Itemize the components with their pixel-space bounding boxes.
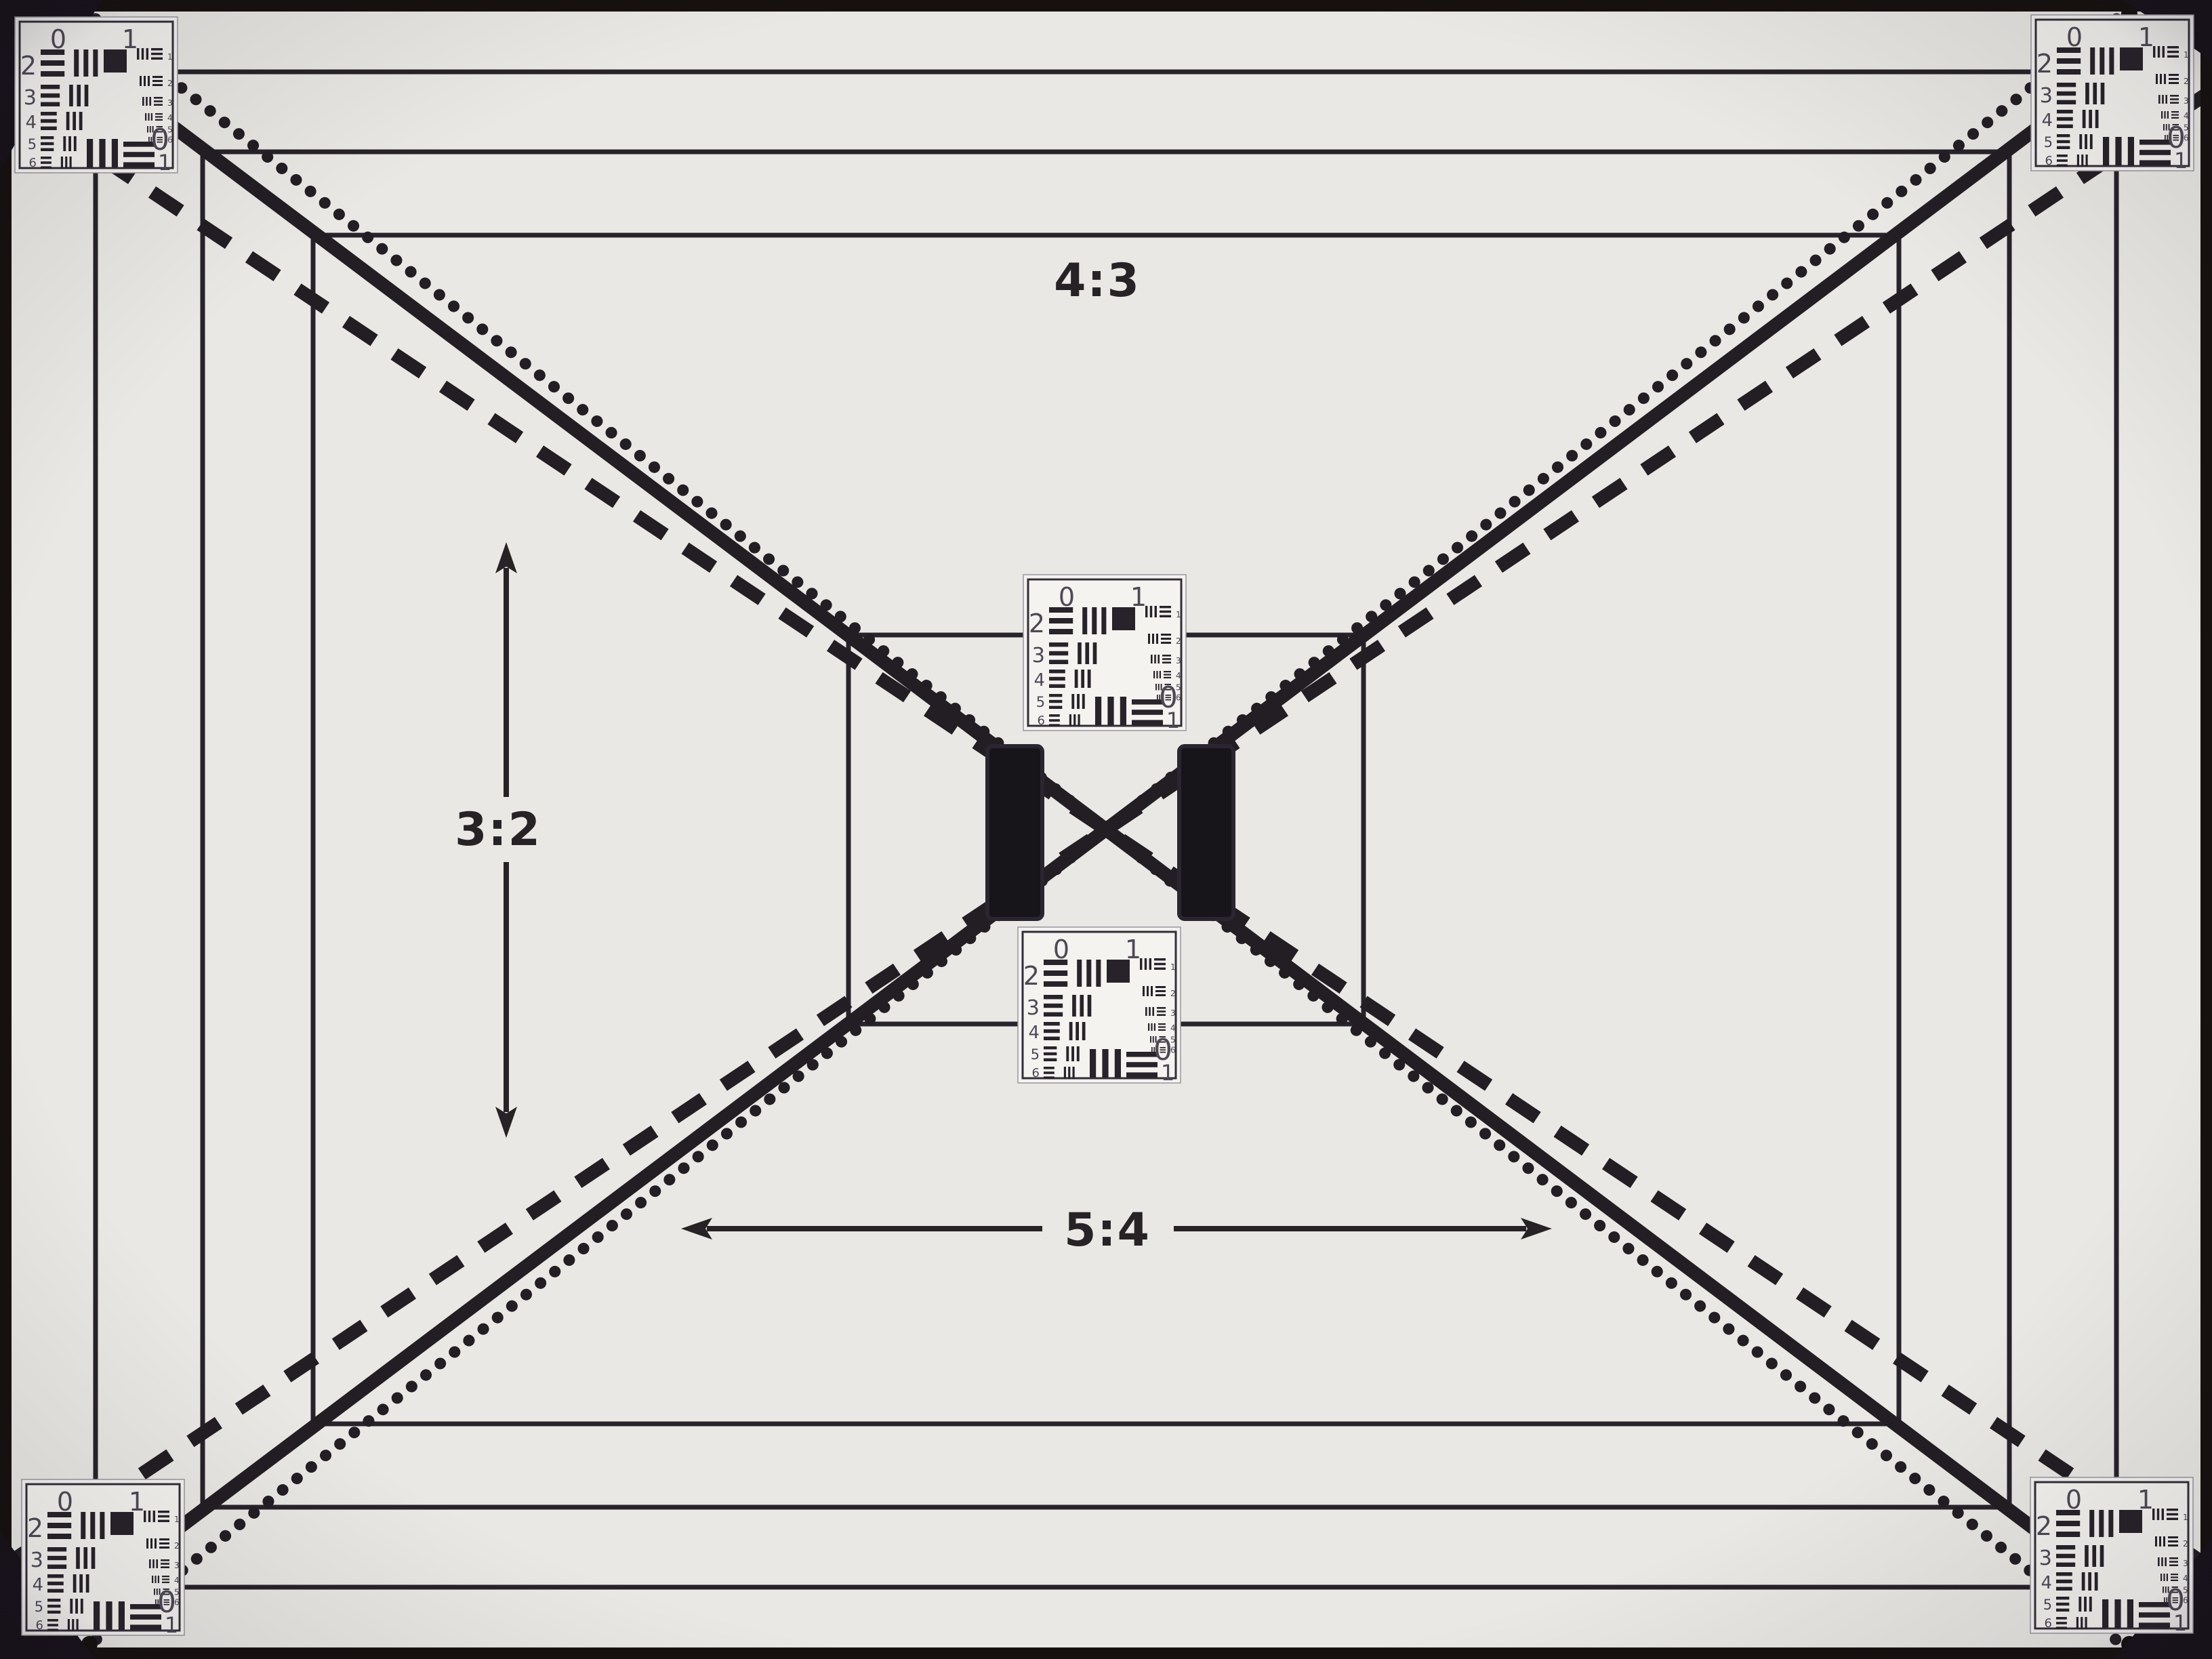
- bar: [1085, 642, 1089, 664]
- bar-group-vertical: [2079, 134, 2092, 149]
- bar: [1049, 651, 1068, 655]
- bar-group-vertical: [1148, 1023, 1155, 1031]
- row-number: 2: [27, 1513, 43, 1543]
- bar-group-vertical: [61, 157, 72, 169]
- bar: [90, 1512, 95, 1539]
- bar: [1044, 1037, 1060, 1040]
- bar: [2127, 1599, 2133, 1628]
- bar: [1044, 1067, 1054, 1069]
- bar: [148, 76, 150, 86]
- bar: [91, 1547, 96, 1569]
- bar-group-vertical: [1145, 606, 1157, 617]
- card-scale-label-1: 1: [1161, 1060, 1174, 1086]
- bar: [1151, 655, 1153, 663]
- bar: [1071, 1046, 1074, 1061]
- bar: [1082, 1022, 1086, 1040]
- bar: [47, 1624, 58, 1626]
- bar: [106, 1601, 112, 1630]
- bar: [1161, 642, 1171, 644]
- bar: [1073, 714, 1076, 726]
- bar: [1076, 1022, 1079, 1040]
- bar: [1160, 606, 1171, 608]
- row-number: 5: [35, 1599, 43, 1615]
- bar: [2057, 91, 2076, 96]
- bar: [1044, 1029, 1060, 1033]
- bar: [47, 1547, 66, 1551]
- bar: [155, 1576, 156, 1583]
- bar: [74, 136, 77, 151]
- bar: [1156, 634, 1158, 644]
- bar: [1064, 1067, 1066, 1079]
- bar: [155, 116, 163, 117]
- bar: [154, 100, 163, 102]
- bar: [1068, 1067, 1070, 1079]
- bar: [1150, 1036, 1151, 1043]
- bar-group-horizontal: [1160, 606, 1171, 617]
- bar-group-horizontal: [2056, 1597, 2069, 1612]
- bar-group-horizontal: [155, 113, 163, 121]
- bar-group-vertical: [1075, 670, 1091, 688]
- bar-group-horizontal: [1162, 655, 1171, 663]
- test-chart-photo: 0123456123456010123456123456010123456123…: [0, 0, 2212, 1659]
- bar-group-horizontal: [152, 76, 163, 86]
- bar: [47, 1599, 60, 1601]
- bar-group-horizontal: [1044, 1046, 1057, 1061]
- row-number: 5: [1031, 1046, 1040, 1063]
- bar: [2167, 111, 2169, 119]
- bar: [2171, 1576, 2178, 1578]
- bar-group-vertical: [1095, 697, 1126, 725]
- bar: [1161, 634, 1171, 636]
- bar-group-horizontal: [2171, 1574, 2178, 1581]
- bar: [93, 49, 98, 77]
- bar: [2056, 1510, 2080, 1515]
- bar: [2161, 1557, 2163, 1566]
- bar-group-vertical: [2089, 1510, 2113, 1537]
- bar: [159, 1538, 169, 1540]
- bar: [161, 1566, 169, 1568]
- bar: [68, 1619, 70, 1631]
- bar: [2155, 1536, 2157, 1547]
- row-number: 3: [1027, 996, 1040, 1020]
- bar: [1078, 642, 1082, 664]
- bar: [2081, 155, 2083, 167]
- bar: [1078, 714, 1080, 726]
- row-number: 3: [2039, 1547, 2052, 1570]
- bar: [2089, 110, 2092, 128]
- bar: [2158, 95, 2160, 104]
- bar: [47, 1582, 64, 1585]
- bar-group-vertical: [1090, 1049, 1121, 1078]
- bar: [155, 1538, 157, 1549]
- bar: [146, 97, 148, 106]
- bar: [1044, 1004, 1063, 1008]
- bar: [47, 1611, 60, 1614]
- usaf-target-card-top-left: 012345612345601: [15, 17, 178, 176]
- big-black-square: [2120, 47, 2143, 70]
- bar: [2158, 1557, 2160, 1566]
- bar: [2057, 110, 2073, 113]
- element-number: 2: [2183, 1539, 2188, 1549]
- bar: [2171, 114, 2179, 115]
- bar: [1155, 684, 1157, 691]
- bar: [1145, 958, 1147, 970]
- bar: [1049, 660, 1068, 664]
- element-number: 1: [174, 1515, 180, 1524]
- bar: [41, 119, 57, 123]
- bar: [1162, 661, 1171, 663]
- bar-group-horizontal: [41, 49, 64, 77]
- bar: [47, 1523, 71, 1528]
- bar: [47, 1629, 58, 1631]
- bar: [2085, 134, 2087, 149]
- bar: [2139, 1622, 2170, 1628]
- bar: [1164, 674, 1171, 675]
- bar: [2088, 1572, 2091, 1591]
- bar: [1095, 697, 1101, 725]
- bar: [1157, 1014, 1166, 1016]
- bar: [2090, 47, 2095, 75]
- bar: [2056, 1580, 2072, 1583]
- bar-group-vertical: [2158, 1557, 2167, 1566]
- bar: [1044, 1071, 1054, 1074]
- bar: [1049, 684, 1065, 688]
- bar-group-horizontal: [2057, 83, 2076, 104]
- bar: [2169, 82, 2179, 84]
- bar: [2170, 95, 2179, 97]
- bar: [1162, 655, 1171, 657]
- bar-group-horizontal: [2057, 110, 2073, 128]
- bar-group-vertical: [2152, 1509, 2164, 1520]
- bar: [2085, 1545, 2089, 1567]
- bar: [151, 58, 163, 60]
- bar: [1102, 1049, 1108, 1078]
- bar: [47, 1556, 66, 1560]
- bar: [154, 104, 163, 106]
- bar-group-vertical: [2153, 46, 2165, 58]
- bar: [2077, 155, 2079, 167]
- bar: [75, 1599, 78, 1614]
- bar-group-vertical: [142, 97, 151, 106]
- bar-group-vertical: [1148, 634, 1158, 644]
- bar: [1090, 1049, 1096, 1078]
- bar: [148, 113, 149, 121]
- card-scale-label-1: 1: [2174, 148, 2188, 173]
- bar: [83, 1547, 87, 1569]
- big-black-square: [110, 1512, 134, 1535]
- bar: [2168, 1536, 2178, 1538]
- bar: [2057, 117, 2073, 121]
- bar: [161, 1559, 169, 1561]
- bar: [1093, 642, 1097, 664]
- bar: [2164, 111, 2165, 119]
- bar: [2095, 1572, 2098, 1591]
- bar: [2103, 137, 2109, 165]
- bar: [158, 1515, 169, 1517]
- bar: [73, 1574, 77, 1593]
- aspect-label-4-3: 4:3: [1054, 254, 1141, 308]
- bar-group-vertical: [1072, 995, 1091, 1017]
- bar: [2056, 1626, 2067, 1629]
- bar-group-vertical: [1078, 642, 1097, 664]
- bar: [2171, 1574, 2178, 1575]
- bar-group-horizontal: [2056, 1617, 2067, 1629]
- element-number: 2: [167, 79, 173, 88]
- bar-group-vertical: [2078, 1597, 2091, 1612]
- bar: [77, 1619, 79, 1631]
- bar: [72, 1619, 74, 1631]
- bar-group-vertical: [68, 1619, 79, 1631]
- bar-group-horizontal: [1155, 986, 1166, 996]
- bar: [158, 1520, 169, 1522]
- bar: [99, 139, 105, 167]
- usaf-target-card-top-right: 012345612345601: [2031, 15, 2194, 173]
- bar: [119, 1601, 125, 1630]
- bar: [2056, 1587, 2072, 1591]
- row-number: 4: [1034, 670, 1045, 691]
- row-number: 2: [2036, 49, 2053, 79]
- bar: [1071, 694, 1074, 709]
- bar: [146, 48, 148, 60]
- bar: [2099, 1510, 2104, 1537]
- bar: [142, 97, 144, 106]
- bar: [1082, 607, 1087, 634]
- bar: [2157, 1509, 2159, 1520]
- bar-group-horizontal: [1044, 995, 1063, 1017]
- element-number: 3: [174, 1561, 180, 1570]
- bar-group-vertical: [1069, 1022, 1086, 1040]
- bar: [1081, 670, 1084, 688]
- bar: [41, 148, 54, 151]
- bar: [1158, 655, 1160, 663]
- bar-group-horizontal: [41, 136, 54, 151]
- bar: [2167, 1518, 2178, 1520]
- bar: [159, 1542, 169, 1544]
- bar-group-vertical: [1082, 607, 1106, 634]
- bar-group-horizontal: [158, 1511, 169, 1522]
- bar-group-vertical: [70, 1599, 83, 1614]
- row-number: 2: [1029, 609, 1045, 638]
- bar: [2089, 1510, 2094, 1537]
- bar: [100, 1512, 104, 1539]
- bar: [1143, 986, 1145, 996]
- bar-group-vertical: [152, 1576, 159, 1583]
- bar: [123, 162, 155, 167]
- bar: [1160, 671, 1161, 678]
- bar-group-horizontal: [1049, 714, 1060, 726]
- bar-group-vertical: [1066, 1046, 1079, 1061]
- bar: [2163, 124, 2165, 131]
- bar: [2167, 56, 2179, 58]
- bar: [79, 112, 83, 130]
- bar: [41, 49, 64, 55]
- row-number: 3: [30, 1549, 43, 1572]
- bar: [47, 1589, 64, 1593]
- bar: [149, 1559, 151, 1568]
- bar: [2171, 111, 2179, 112]
- bar: [47, 1565, 66, 1569]
- bar: [2057, 164, 2068, 167]
- bar: [86, 1574, 89, 1593]
- bar: [151, 48, 163, 50]
- bar-group-vertical: [74, 49, 98, 77]
- bar-group-horizontal: [1044, 960, 1067, 987]
- bar: [2162, 1509, 2164, 1520]
- bar: [1044, 1059, 1057, 1061]
- bar-group-vertical: [1151, 655, 1160, 663]
- bar: [1147, 986, 1149, 996]
- bar: [1140, 958, 1142, 970]
- bar: [1088, 995, 1092, 1017]
- bar: [1154, 655, 1156, 663]
- bar: [1120, 697, 1126, 725]
- bar: [2089, 1597, 2092, 1612]
- bar-group-horizontal: [161, 1559, 169, 1568]
- element-number: 2: [2184, 77, 2189, 86]
- bar-group-vertical: [1145, 1007, 1154, 1016]
- bar: [1096, 960, 1101, 987]
- bar: [41, 166, 52, 169]
- bar: [2169, 1557, 2178, 1559]
- bar: [1049, 618, 1073, 623]
- bar: [2092, 1545, 2096, 1567]
- bar: [1154, 1023, 1155, 1031]
- bar: [2171, 1580, 2178, 1581]
- usaf-target-card-center-bottom: 012345612345601: [1018, 927, 1181, 1086]
- element-number: 1: [1170, 962, 1176, 972]
- bar: [47, 1512, 71, 1517]
- bar: [2056, 1545, 2075, 1549]
- bar-group-horizontal: [1049, 607, 1073, 634]
- bar-group-horizontal: [1049, 642, 1068, 664]
- bar: [1154, 963, 1166, 965]
- bar: [2152, 1509, 2154, 1520]
- row-number: 6: [29, 156, 37, 170]
- bar: [1073, 1067, 1075, 1079]
- row-number: 4: [2042, 110, 2053, 131]
- bar: [41, 136, 54, 139]
- bar: [41, 142, 54, 145]
- bar: [1044, 1012, 1063, 1017]
- bar: [2102, 1599, 2108, 1628]
- bar: [2170, 102, 2179, 104]
- bar-group-horizontal: [2057, 134, 2070, 149]
- bar: [2159, 1536, 2161, 1547]
- bar-group-vertical: [140, 76, 150, 86]
- bar-group-horizontal: [47, 1619, 58, 1631]
- bar: [41, 71, 64, 77]
- element-number: 1: [1176, 610, 1181, 619]
- bar-group-horizontal: [1049, 670, 1065, 688]
- bar: [1157, 1010, 1166, 1012]
- usaf-target-card-bottom-left: 012345612345601: [22, 1479, 184, 1638]
- velcro-tab-right: [1179, 746, 1233, 919]
- bar: [161, 1563, 169, 1565]
- bar: [2158, 46, 2160, 58]
- bar-group-horizontal: [1157, 1007, 1166, 1016]
- row-number: 4: [33, 1575, 43, 1595]
- element-number: 2: [1176, 636, 1181, 646]
- bar-group-vertical: [137, 48, 148, 60]
- bar-group-horizontal: [41, 157, 52, 169]
- bar: [2171, 117, 2179, 119]
- bar: [2057, 100, 2076, 104]
- bar: [1158, 1023, 1166, 1025]
- bar-group-horizontal: [47, 1574, 64, 1593]
- bar: [2170, 98, 2179, 100]
- bar: [81, 1512, 85, 1539]
- bar-group-horizontal: [2170, 95, 2179, 104]
- bar: [2056, 1554, 2075, 1558]
- bar: [1152, 1007, 1154, 1016]
- bar: [2082, 1572, 2085, 1591]
- bar: [85, 85, 89, 106]
- card-scale-label-1: 1: [158, 150, 171, 176]
- bar: [2056, 1617, 2067, 1620]
- bar-group-horizontal: [2169, 1557, 2178, 1566]
- bar: [2162, 95, 2164, 104]
- element-number: 2: [1170, 989, 1176, 998]
- bar-group-horizontal: [151, 48, 163, 60]
- bar: [2056, 1572, 2072, 1576]
- row-number: 4: [1029, 1023, 1040, 1043]
- bar: [1145, 606, 1147, 617]
- bar: [1049, 719, 1060, 722]
- bar: [2160, 1574, 2162, 1581]
- bar: [1148, 1023, 1149, 1031]
- bar-group-vertical: [2077, 155, 2088, 167]
- bar: [1049, 677, 1065, 680]
- bar: [1150, 606, 1152, 617]
- bar: [1069, 714, 1071, 726]
- bar: [2057, 146, 2070, 149]
- bar-group-vertical: [63, 136, 76, 151]
- element-number: 4: [1170, 1023, 1176, 1033]
- row-number: 6: [2045, 154, 2053, 168]
- bar: [69, 85, 73, 106]
- bar: [2167, 1509, 2178, 1511]
- bar-group-vertical: [1143, 986, 1153, 996]
- bar: [2079, 134, 2082, 149]
- element-number: 3: [2184, 96, 2189, 106]
- bar-group-vertical: [2161, 111, 2169, 119]
- bar: [2076, 1617, 2078, 1629]
- bar: [149, 97, 151, 106]
- bar: [158, 1576, 159, 1583]
- bar: [2168, 1544, 2178, 1547]
- element-number: 1: [2183, 1513, 2188, 1522]
- bar: [1158, 1026, 1166, 1027]
- element-number: 3: [2183, 1559, 2188, 1568]
- bar: [1149, 958, 1151, 970]
- bar-group-vertical: [146, 1538, 157, 1549]
- bar: [2114, 1599, 2121, 1628]
- bar: [130, 1624, 161, 1630]
- bar: [2056, 1563, 2075, 1567]
- bar-group-vertical: [2076, 1617, 2087, 1629]
- bar: [2084, 1597, 2087, 1612]
- bar-group-horizontal: [1161, 634, 1171, 644]
- bar: [2078, 1597, 2081, 1612]
- bar-group-horizontal: [159, 1538, 169, 1549]
- bar-group-horizontal: [1044, 1022, 1060, 1040]
- bar-group-horizontal: [2171, 111, 2179, 119]
- bar: [2056, 1622, 2067, 1624]
- bar: [152, 1576, 153, 1583]
- bar-group-horizontal: [2167, 1509, 2178, 1520]
- bar: [2057, 159, 2068, 162]
- element-number: 3: [167, 98, 173, 108]
